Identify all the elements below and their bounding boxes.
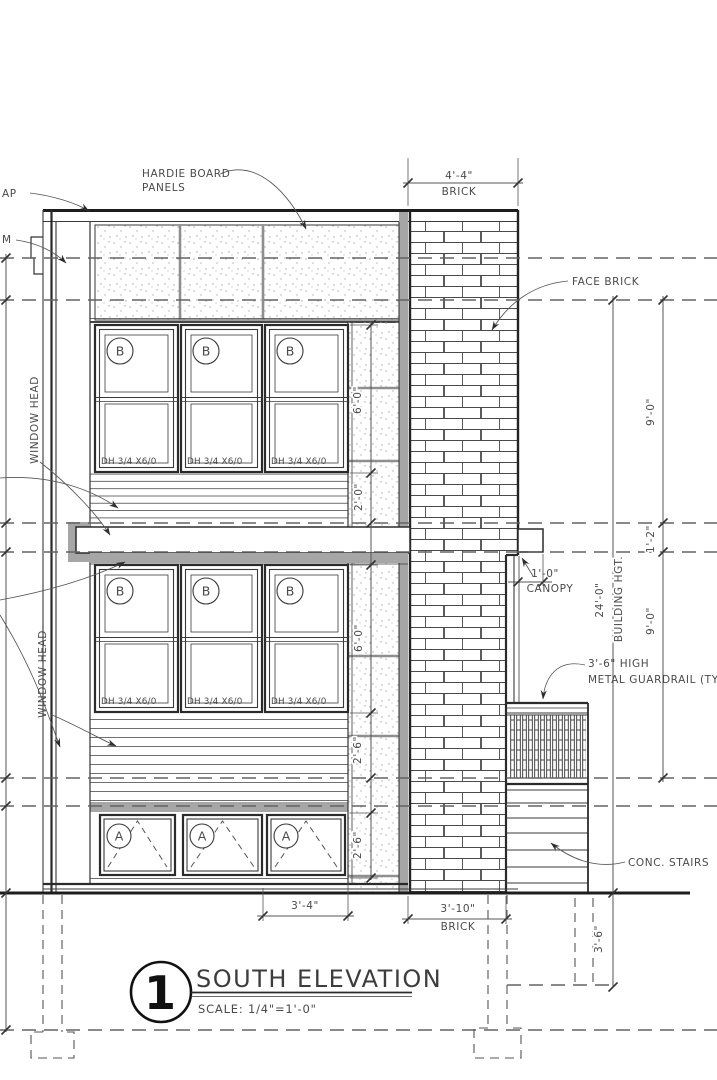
second-floor-windows: B DH 3/4 X6/0 B DH 3/4 X6/0 B DH 3/4 X6/… [95,325,348,472]
window-size-label: DH 3/4 X6/0 [187,697,243,707]
hardie-panel-band [90,225,400,322]
dim-window-width: 3'-4" [291,900,319,912]
dim-right-1: 9'-0" [645,398,657,426]
window-b: B DH 3/4 X6/0 [265,565,348,712]
label-guardrail-line2: METAL GUARDRAIL (TYP.) [588,674,717,686]
dim-right-2: 1'-2" [645,525,657,553]
window-a: A [100,815,175,875]
window-a: A [267,815,345,875]
drawing-scale: SCALE: 1/4"=1'-0" [198,1002,317,1016]
dim-strip-1: 6'-0" [352,386,364,414]
label-window-head-lower: WINDOW HEAD [37,630,49,718]
label-face-brick: FACE BRICK [572,276,640,288]
window-b: B DH 3/4 X6/0 [265,325,348,472]
elevation-drawing: B DH 3/4 X6/0 B DH 3/4 X6/0 B DH 3/4 X6/… [0,0,717,1080]
window-b: B DH 3/4 X6/0 [181,565,262,712]
label-conc-stairs: CONC. STAIRS [628,857,709,869]
balusters [509,715,586,778]
sill-shadow-band [90,802,348,812]
window-size-label: DH 3/4 X6/0 [101,457,157,467]
window-tag: B [286,584,295,599]
window-tag: B [286,344,295,359]
label-trim-partial: M [2,234,12,246]
window-tag: A [282,829,291,844]
label-cap-partial: AP [2,188,17,200]
label-guardrail-line1: 3'-6" HIGH [588,658,649,670]
window-tag: B [116,584,125,599]
window-size-label: DH 3/4 X6/0 [271,457,327,467]
window-b: B DH 3/4 X6/0 [181,325,262,472]
dim-brick-top-label: BRICK [442,186,477,198]
dim-strip-5: 2'-6" [352,831,364,859]
elevation-sheet: B DH 3/4 X6/0 B DH 3/4 X6/0 B DH 3/4 X6/… [0,0,717,1080]
dim-canopy-depth: 1'-0" [531,568,559,580]
dim-brick-top-value: 4'-4" [445,170,473,182]
label-hardie-line2: PANELS [142,182,185,194]
lap-siding-lower [90,712,348,802]
brick-column [410,222,518,893]
dim-building-height-label: BUILDING HGT. [613,556,625,642]
dim-foundation-depth: 3'-6" [593,925,605,953]
window-tag: B [116,344,125,359]
dim-strip-4: 2'-6" [352,736,364,764]
detail-number: 1 [144,966,176,1020]
dim-strip-3: 6'-0" [353,624,365,652]
label-canopy: CANOPY [527,583,574,595]
window-b: B DH 3/4 X6/0 [95,565,178,712]
basement-windows: A A A [100,815,345,875]
first-floor-windows: B DH 3/4 X6/0 B DH 3/4 X6/0 B DH 3/4 X6/… [95,565,348,712]
dim-strip-2: 2'-0" [353,483,365,511]
window-tag: B [202,584,211,599]
dim-brick-bottom-value: 3'-10" [440,903,475,915]
parapet-cap [43,210,518,222]
window-a: A [183,815,262,875]
label-window-head-upper: WINDOW HEAD [29,376,41,464]
canopy-stub [518,529,543,552]
dim-right-3: 9'-0" [645,607,657,635]
dim-brick-bottom-label: BRICK [441,921,476,933]
dim-building-height-value: 24'-0" [594,582,606,617]
window-tag: A [115,829,124,844]
label-hardie-line1: HARDIE BOARD [142,168,230,180]
drawing-title: SOUTH ELEVATION [196,965,442,993]
window-size-label: DH 3/4 X6/0 [101,697,157,707]
window-b: B DH 3/4 X6/0 [95,325,178,472]
window-tag: B [202,344,211,359]
window-size-label: DH 3/4 X6/0 [187,457,243,467]
window-size-label: DH 3/4 X6/0 [271,697,327,707]
window-tag: A [198,829,207,844]
lap-siding-upper [90,472,348,523]
